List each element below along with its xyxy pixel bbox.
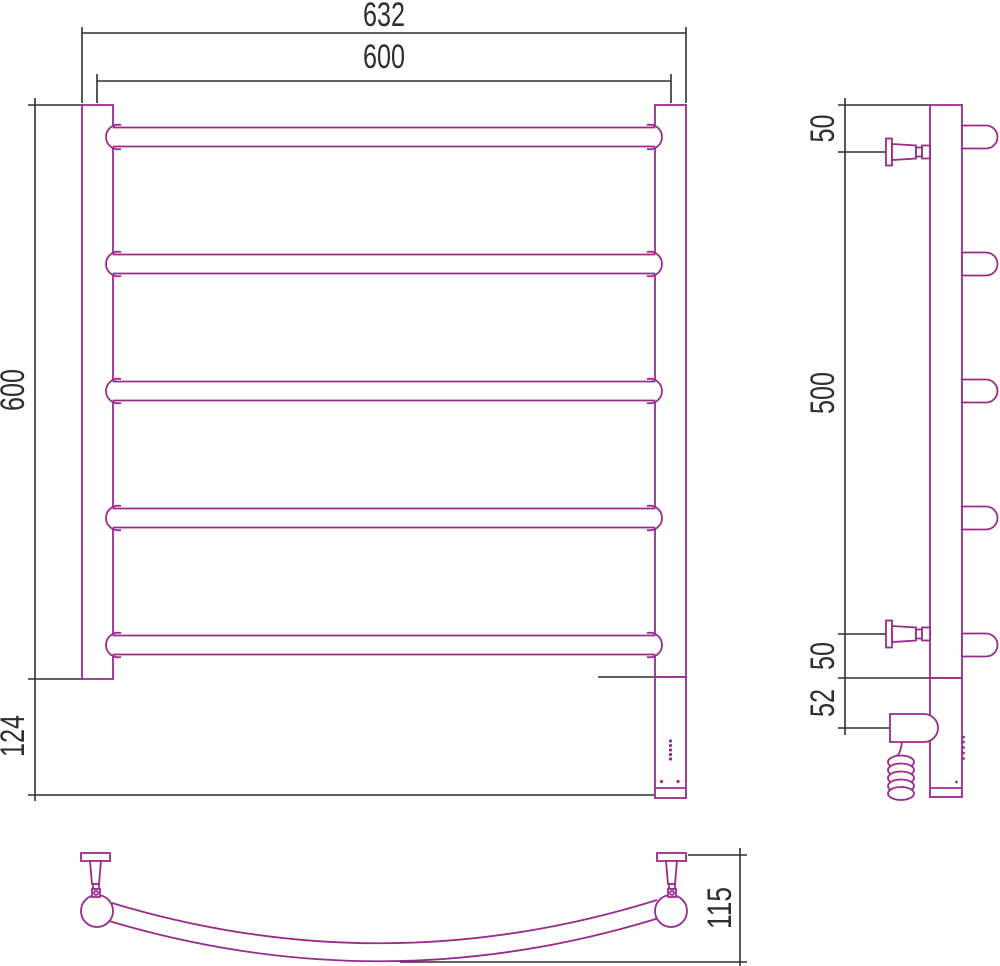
dim-label-offset-heater: 52 (804, 689, 842, 717)
post-section-left (81, 895, 113, 927)
dim-label-bar-length: 600 (363, 38, 405, 76)
post-section-right (655, 895, 687, 927)
bottom-mount-right (657, 853, 686, 897)
dim-label-depth: 115 (701, 887, 739, 929)
dim-label-height-bottom: 124 (0, 715, 32, 757)
drawing-canvas: 632 600 600 124 50 500 (0, 0, 1000, 966)
curved-bar-profile (109, 900, 659, 961)
front-view (82, 105, 686, 798)
wall-bracket-top (886, 139, 930, 166)
wall-bracket-bottom (886, 621, 930, 648)
power-cable-coil (888, 742, 914, 800)
side-view (886, 105, 998, 800)
right-post-upper (655, 105, 686, 677)
dim-label-overall-width: 632 (363, 0, 405, 34)
side-post-upper (930, 105, 962, 678)
dim-label-height-bars: 600 (0, 369, 32, 411)
left-post (82, 105, 113, 679)
dim-label-offset-bottom: 50 (804, 642, 842, 670)
dim-label-offset-top: 50 (804, 115, 842, 143)
right-post-heater-section (655, 677, 686, 798)
bottom-view (81, 853, 687, 961)
bar-3 (106, 379, 662, 404)
bottom-mount-left (81, 853, 110, 897)
bar-2 (106, 252, 662, 277)
side-bar-ends (962, 126, 998, 657)
dim-front-bar-length: 600 (97, 38, 671, 103)
drawing-page: 632 600 600 124 50 500 (0, 0, 1000, 966)
bar-5 (106, 633, 662, 658)
heater-housing (890, 714, 938, 742)
dim-bottom-depth: 115 (400, 848, 747, 966)
bar-4 (106, 506, 662, 531)
bar-1 (106, 125, 662, 150)
dim-label-span-mounts: 500 (804, 372, 842, 414)
